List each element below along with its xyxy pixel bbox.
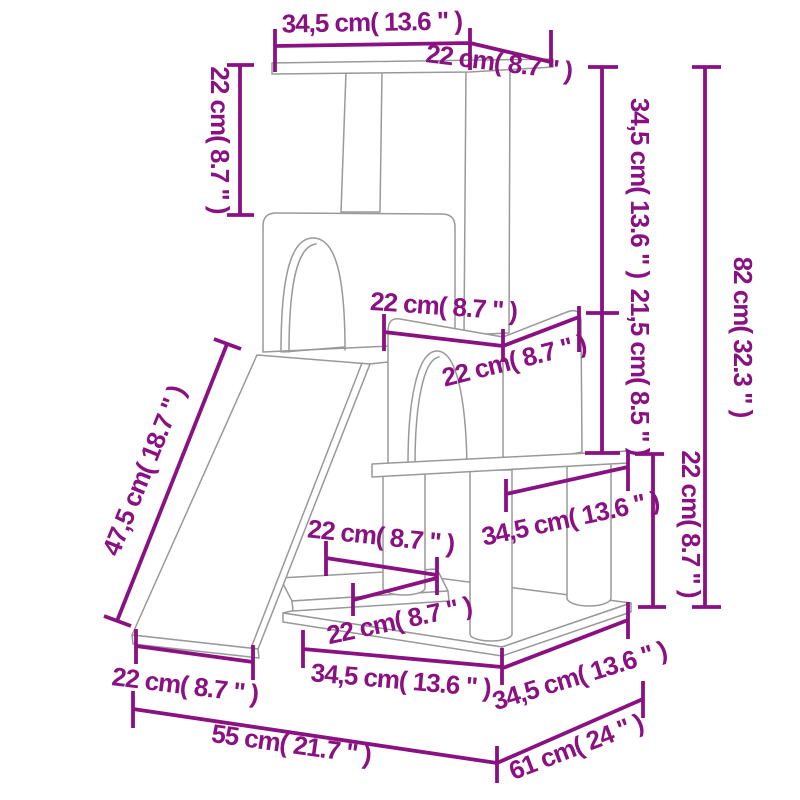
dim-label-top-platform-width: 34,5 cm( 13.6 " ) <box>281 5 462 38</box>
dim-label-overall-depth: 61 cm( 24 " ) <box>505 707 648 786</box>
dim-top-post-height: 22 cm( 8.7 " ) <box>205 65 254 215</box>
dim-upper-section-height: 34,5 cm( 13.6 " ) <box>586 67 655 313</box>
dim-label-house-section-height: 21,5 cm( 8.5 " ) <box>625 289 655 456</box>
cat-tree-diagram-svg: 34,5 cm( 13.6 " ) 22 cm( 8.7 " ) 22 cm( … <box>0 0 800 800</box>
dim-lower-section-height: 22 cm( 8.7 " ) <box>635 450 706 607</box>
dim-label-upper-section-height: 34,5 cm( 13.6 " ) <box>625 98 655 279</box>
dimension-diagram: 34,5 cm( 13.6 " ) 22 cm( 8.7 " ) 22 cm( … <box>0 0 800 800</box>
post-left <box>341 72 382 212</box>
dim-label-top-post-height: 22 cm( 8.7 " ) <box>205 66 235 214</box>
dim-label-step-width: 22 cm( 8.7 " ) <box>306 513 456 558</box>
dim-label-overall-width: 55 cm( 21.7 " ) <box>210 718 374 770</box>
dim-label-lower-section-height: 22 cm( 8.7 " ) <box>676 450 706 598</box>
dim-overall-width: 55 cm( 21.7 " ) <box>133 691 497 783</box>
dim-label-total-height: 82 cm( 32.3 " ) <box>728 257 758 418</box>
